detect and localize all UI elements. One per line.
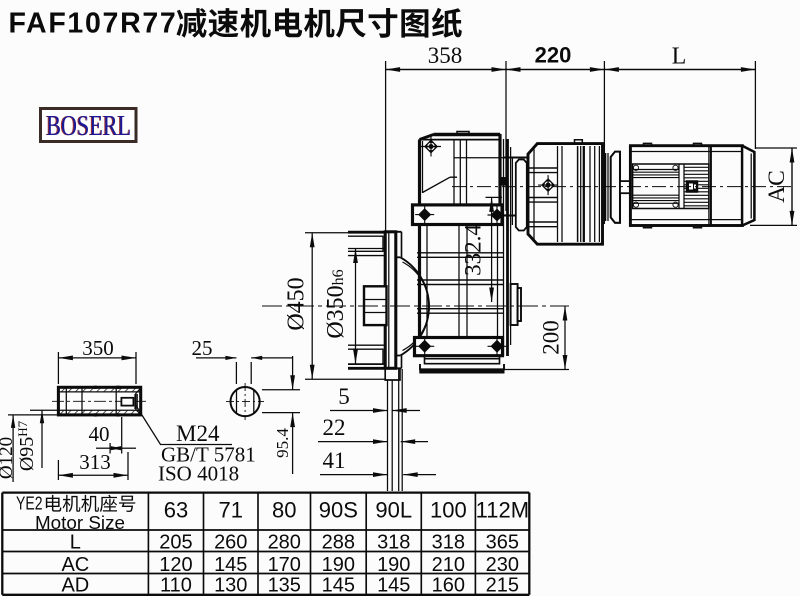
svg-text:95.4: 95.4 [273,428,292,458]
svg-text:200: 200 [539,320,564,355]
svg-text:40: 40 [89,422,110,446]
svg-text:AC: AC [61,554,89,576]
svg-text:135: 135 [268,575,301,596]
svg-text:210: 210 [432,554,465,576]
svg-text:120: 120 [159,554,192,576]
svg-text:25: 25 [192,336,213,360]
svg-text:YE2: YE2 [16,493,43,514]
svg-text:Motor Size: Motor Size [35,513,125,533]
svg-text:80: 80 [272,498,296,523]
svg-text:358: 358 [428,43,463,68]
svg-text:63: 63 [164,498,188,523]
svg-text:350: 350 [82,336,114,360]
svg-text:5: 5 [338,384,350,409]
svg-text:71: 71 [219,498,243,523]
svg-text:332.4: 332.4 [461,224,486,276]
svg-text:Ø450: Ø450 [284,277,310,330]
svg-text:41: 41 [323,448,346,473]
svg-text:205: 205 [159,531,192,553]
svg-text:90L: 90L [375,498,412,523]
svg-text:ISO 4018: ISO 4018 [158,462,239,486]
svg-text:130: 130 [214,575,247,596]
svg-text:AD: AD [61,575,89,596]
svg-text:BOSERL: BOSERL [46,111,131,142]
svg-text:280: 280 [268,531,301,553]
svg-text:190: 190 [322,554,355,576]
svg-text:365: 365 [486,531,519,553]
svg-text:313: 313 [79,450,111,474]
svg-text:318: 318 [377,531,410,553]
svg-text:22: 22 [323,415,346,440]
svg-text:112M: 112M [476,498,529,523]
svg-text:L: L [672,44,687,70]
svg-text:230: 230 [486,554,519,576]
svg-text:90S: 90S [319,498,358,523]
svg-text:145: 145 [214,554,247,576]
svg-text:318: 318 [432,531,465,553]
svg-text:L: L [70,531,81,553]
svg-text:145: 145 [377,575,410,596]
svg-text:170: 170 [268,554,301,576]
svg-text:160: 160 [432,575,465,596]
svg-text:288: 288 [322,531,355,553]
svg-text:Ø120: Ø120 [0,437,17,479]
svg-text:FAF107R77: FAF107R77 [9,8,178,40]
svg-text:260: 260 [214,531,247,553]
svg-text:100: 100 [430,498,467,523]
svg-text:145: 145 [322,575,355,596]
svg-text:190: 190 [377,554,410,576]
svg-text:110: 110 [160,575,192,596]
svg-text:220: 220 [535,43,572,68]
svg-text:215: 215 [486,575,519,596]
